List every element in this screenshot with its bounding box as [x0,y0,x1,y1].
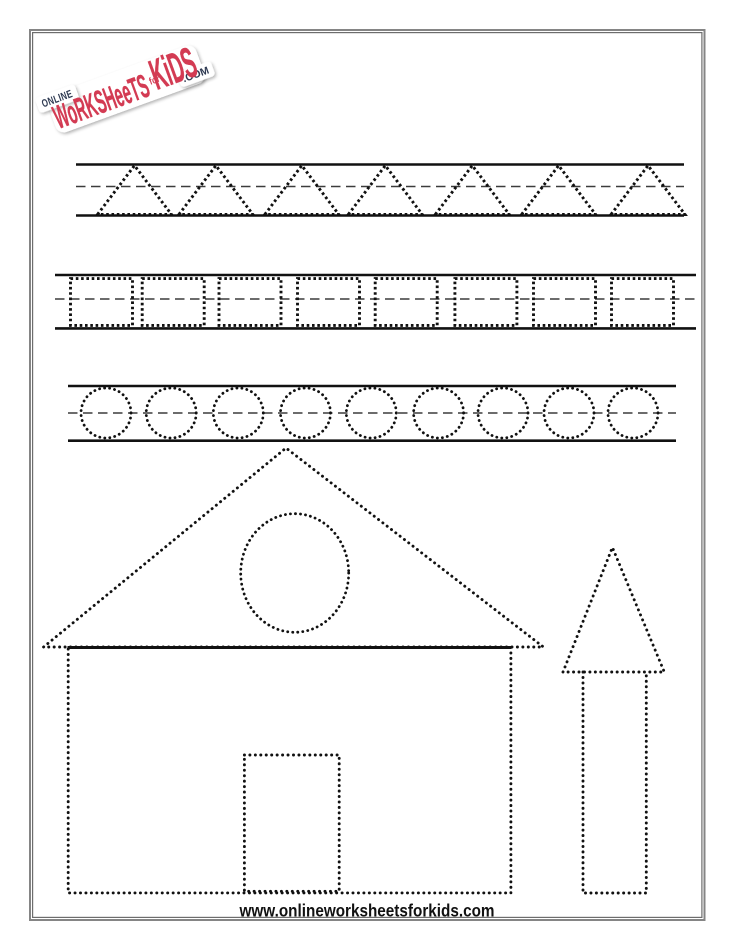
svg-text:www.onlineworksheetsforkids.co: www.onlineworksheetsforkids.com [239,901,495,921]
